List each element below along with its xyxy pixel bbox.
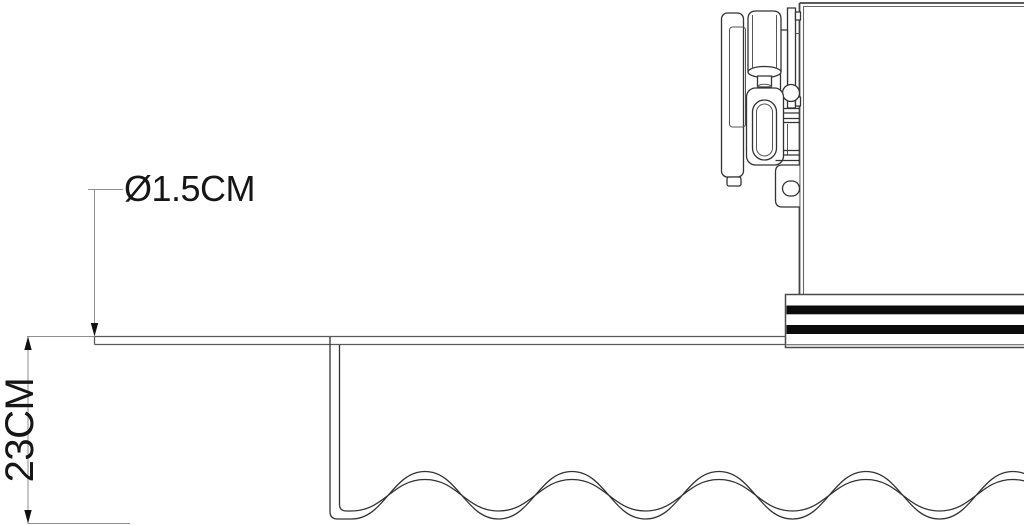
gear-nub — [758, 76, 772, 87]
awning-technical-drawing: Ø1.5CM 23CM — [0, 0, 1024, 526]
diameter-dimension-label: Ø1.5CM — [124, 168, 255, 209]
bracket-tab-top — [796, 12, 801, 20]
diameter-dimension: Ø1.5CM — [88, 168, 255, 337]
height-dimension-label: 23CM — [0, 378, 42, 483]
lower-bracket-slot — [783, 181, 800, 196]
roller-profile-outline — [786, 295, 1024, 348]
mounting-plate-foot — [727, 177, 741, 186]
height-arrowhead-bottom — [24, 510, 31, 524]
pivot-circle — [783, 85, 800, 102]
valance-fabric — [330, 337, 1024, 519]
drawing-canvas: Ø1.5CM 23CM — [0, 0, 1024, 526]
height-dimension: 23CM — [0, 337, 130, 524]
valance-inner-edge — [340, 345, 1024, 511]
roller-stripe-lower — [787, 325, 1024, 334]
valance-outer-edge — [330, 337, 1024, 519]
height-arrowhead-top — [24, 337, 31, 351]
mounting-bracket-assembly — [722, 8, 801, 207]
cassette-box — [800, 3, 1024, 295]
roller-stripe-upper — [787, 306, 1024, 315]
diameter-arrowhead — [91, 323, 98, 337]
mounting-plate — [722, 13, 744, 177]
front-bar — [95, 337, 786, 345]
roller-bar-profile — [786, 295, 1024, 348]
